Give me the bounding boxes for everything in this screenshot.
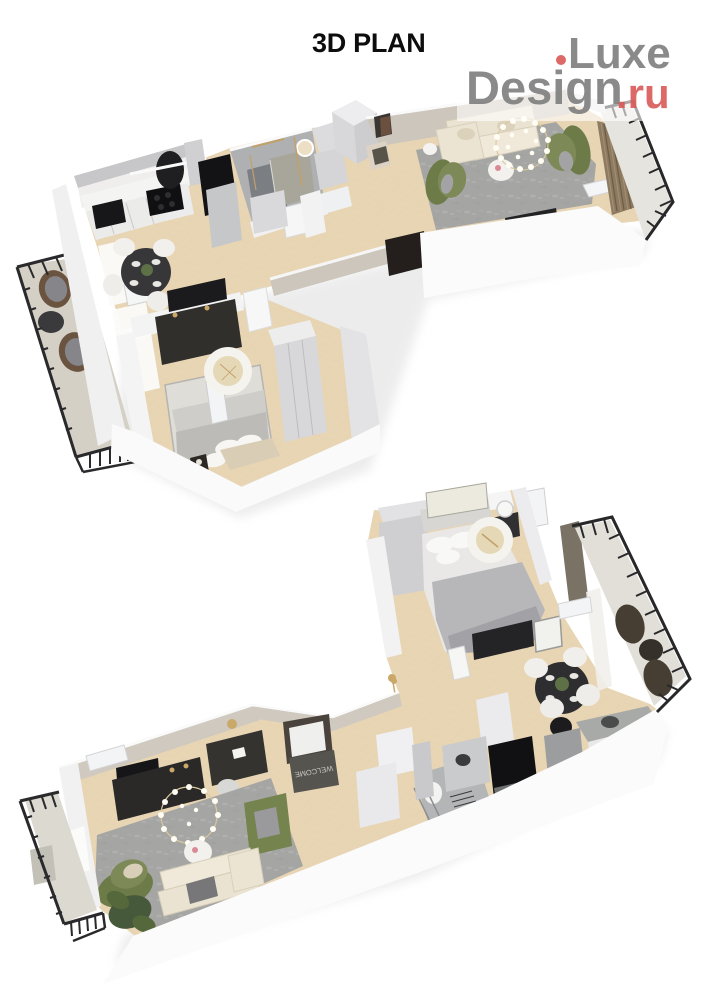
svg-text:.ru: .ru bbox=[616, 70, 670, 117]
svg-text:3D PLAN: 3D PLAN bbox=[312, 28, 425, 58]
svg-text:Design: Design bbox=[466, 61, 623, 114]
